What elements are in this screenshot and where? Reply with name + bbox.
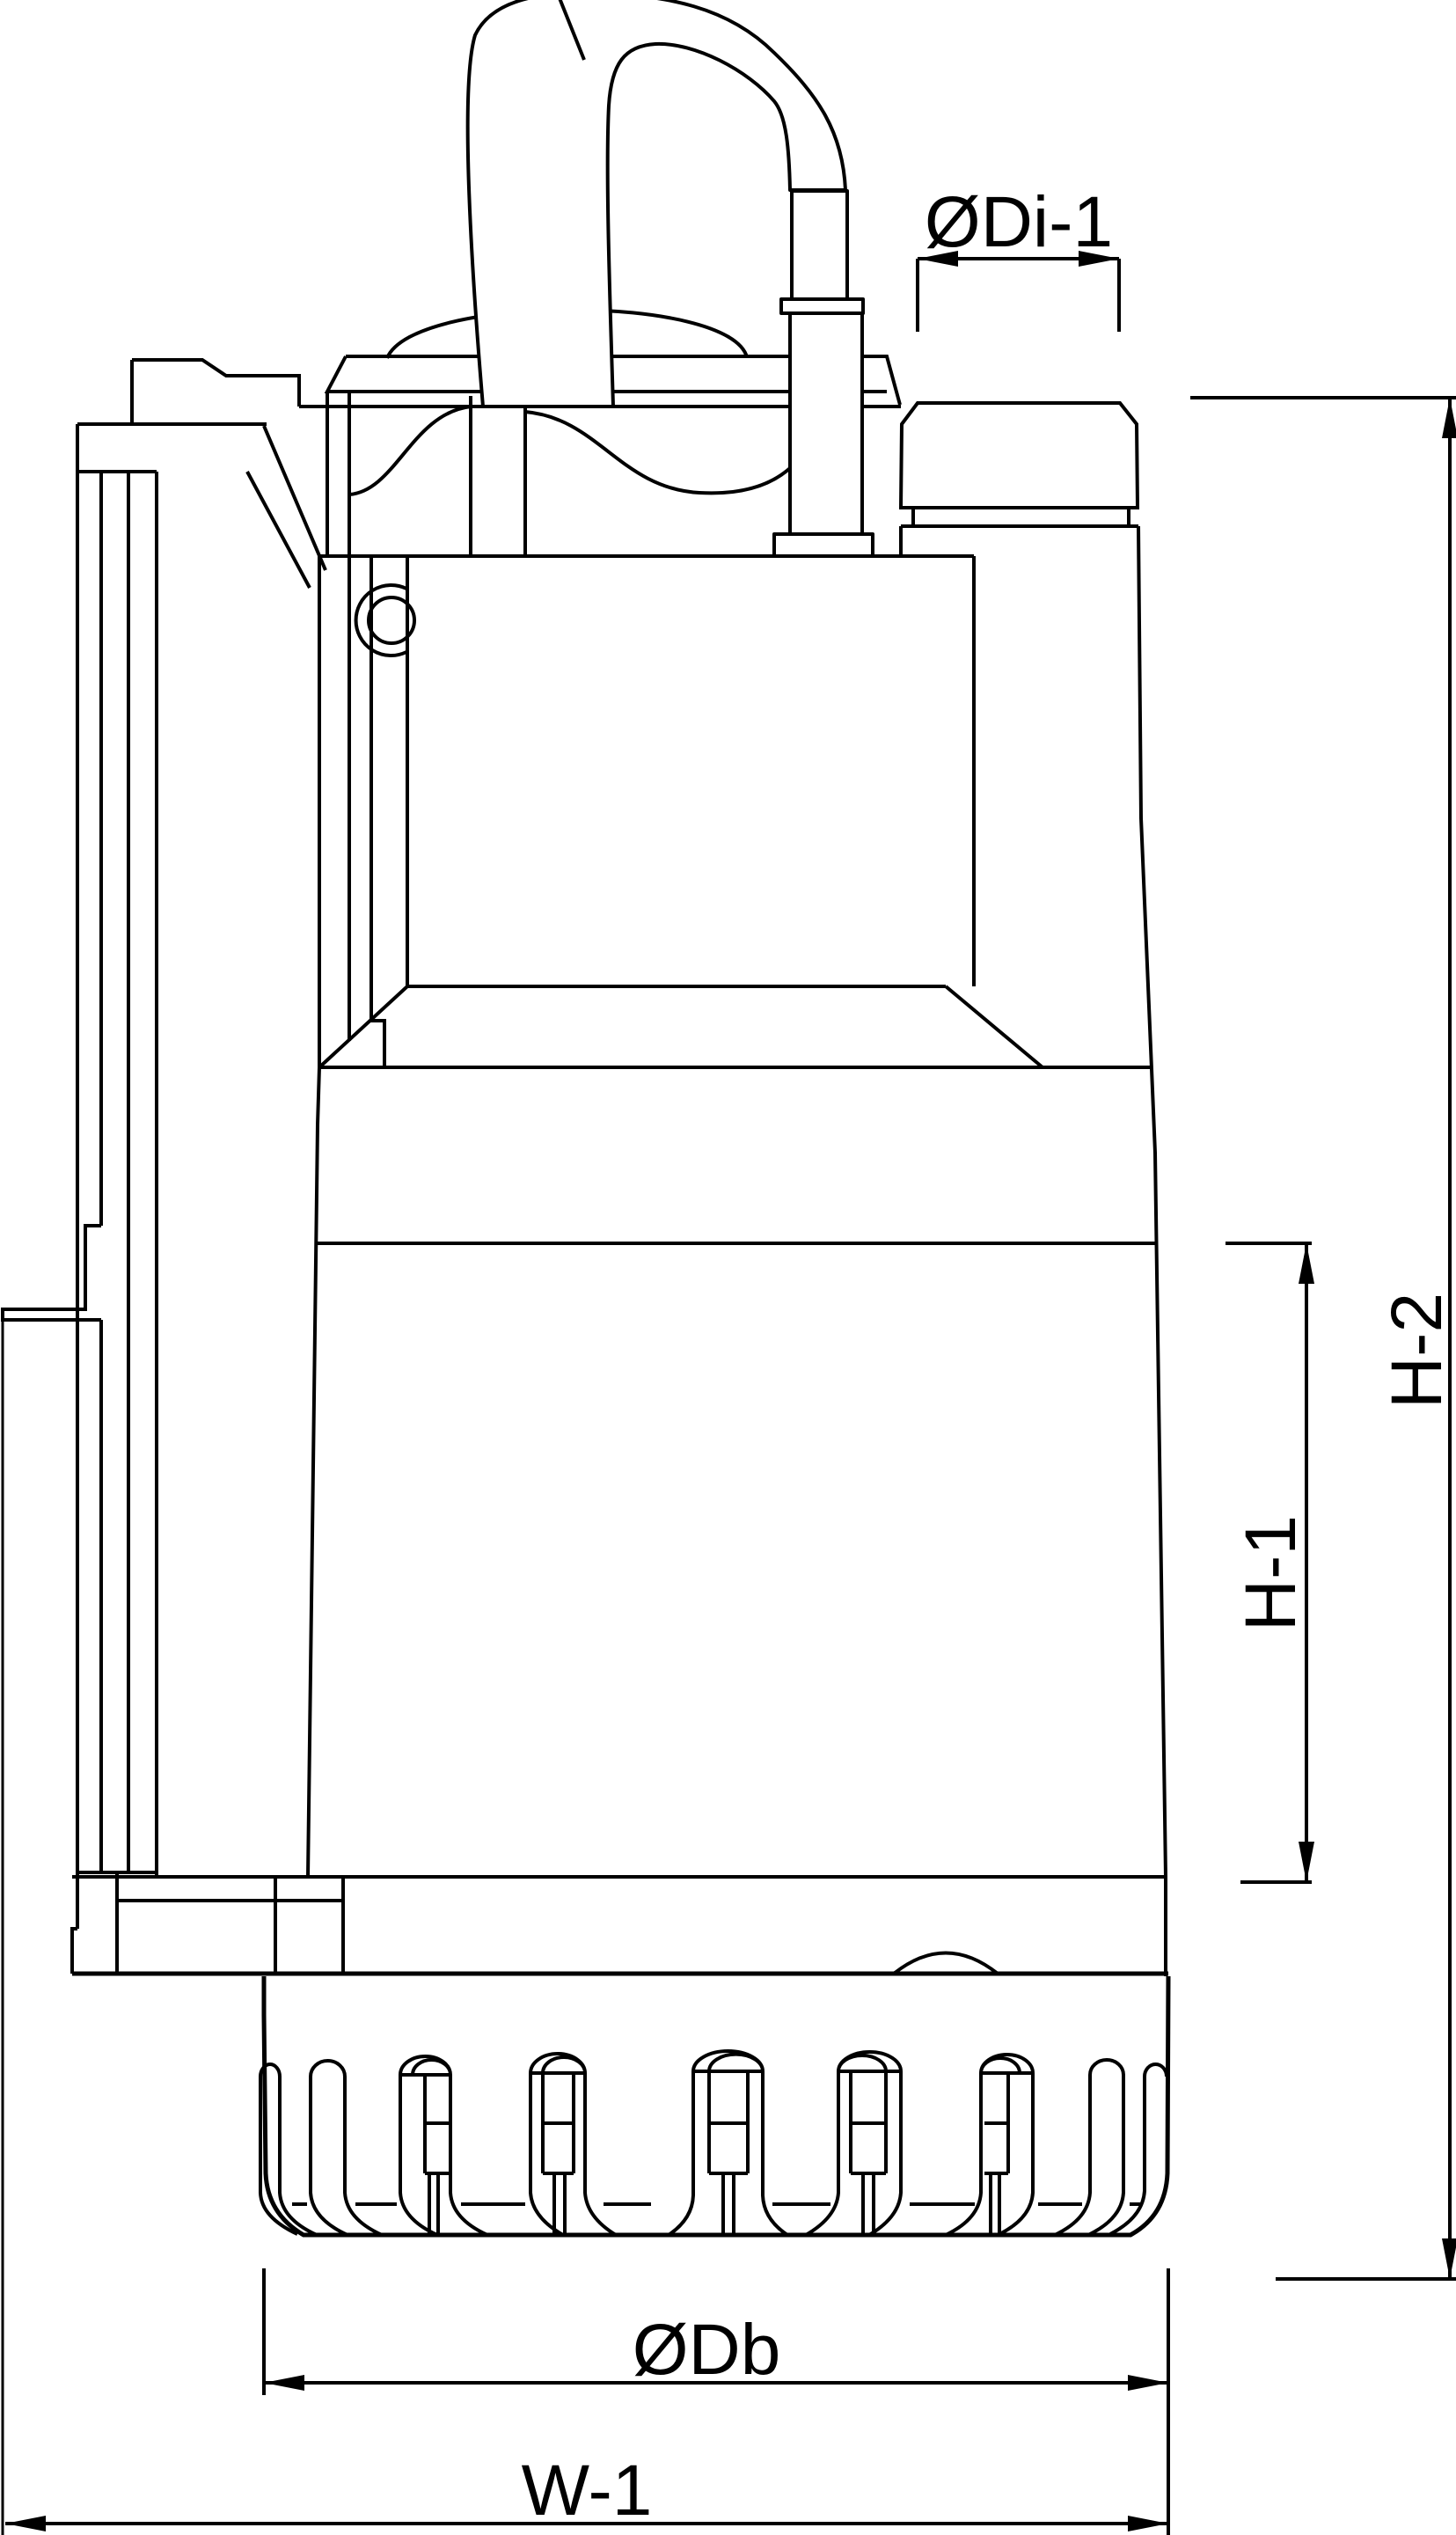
cover-left-walls <box>327 392 349 1041</box>
dim-overall-width: W-1 <box>3 1320 1168 2535</box>
cable-gland <box>774 191 873 556</box>
h1-arrow-top <box>1299 1243 1314 1284</box>
strainer <box>260 1976 1168 2235</box>
base-bump <box>894 1953 998 1975</box>
cap-body <box>901 403 1138 508</box>
dim-base-diameter: ØDb <box>264 2268 1168 2535</box>
cover-curve-left <box>349 407 471 495</box>
pump-body <box>299 356 1166 1877</box>
casing-left-edge <box>308 1067 319 1877</box>
strainer-slots <box>260 2051 1167 2235</box>
odi1-extension-lines <box>918 259 1119 332</box>
w1-arrow-right <box>1128 2516 1168 2531</box>
gland-pipe <box>792 191 847 299</box>
bracket-top-flange <box>132 360 299 407</box>
gland-collar <box>781 299 863 313</box>
gland-pedestal <box>774 534 873 556</box>
handle-legs <box>471 393 525 556</box>
outlet-diameter-label: ØDi-1 <box>925 182 1113 262</box>
base-verticals <box>275 1877 1166 1976</box>
discharge-cap <box>901 403 1138 556</box>
dim-casing-height: H-1 <box>1226 1243 1314 1882</box>
h2-arrow-top <box>1442 398 1456 438</box>
overall-width-label: W-1 <box>522 2451 653 2531</box>
casing-height-label: H-1 <box>1231 1515 1311 1631</box>
bracket-strut-1 <box>264 426 326 570</box>
dimensions: ØDi-1 H-2 H-1 ØDb <box>3 182 1456 2535</box>
pump-technical-drawing: ØDi-1 H-2 H-1 ØDb <box>0 0 1456 2535</box>
w1-arrow-left <box>5 2516 46 2531</box>
drawing-page: ØDi-1 H-2 H-1 ØDb <box>0 0 1456 2535</box>
casing-right-edge <box>1138 526 1166 1877</box>
gland-boot <box>790 313 862 534</box>
base-plate <box>72 1877 1168 1976</box>
odb-arrow-right <box>1128 2375 1168 2391</box>
bracket-strut-2 <box>247 472 310 588</box>
shoulder-diagonals <box>319 986 1043 1067</box>
h1-arrow-bottom <box>1299 1842 1314 1882</box>
housing-left-walls <box>319 556 407 1067</box>
odb-arrow-left <box>264 2375 304 2391</box>
float-bracket <box>3 360 326 1974</box>
total-height-label: H-2 <box>1377 1293 1456 1409</box>
cover-curve-right <box>525 412 790 493</box>
dim-total-height: H-2 <box>1190 398 1456 2279</box>
oil-plug-arc <box>356 585 406 656</box>
h2-arrow-bottom <box>1442 2238 1456 2279</box>
dim-outlet-diameter: ØDi-1 <box>918 182 1119 332</box>
base-diameter-label: ØDb <box>633 2310 781 2390</box>
cap-ring <box>913 508 1129 526</box>
bracket-tab <box>3 1226 101 1320</box>
